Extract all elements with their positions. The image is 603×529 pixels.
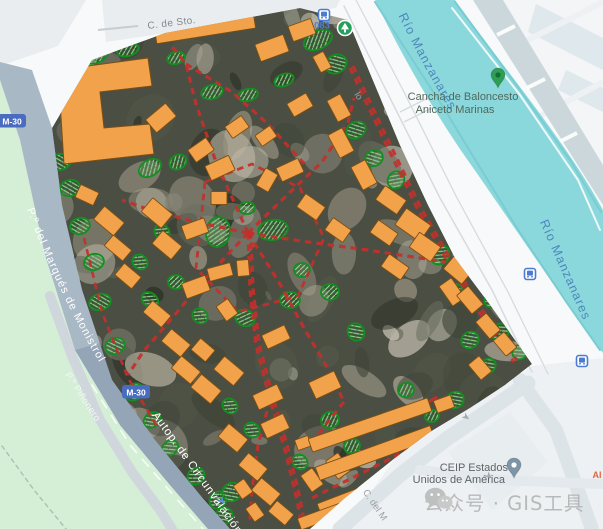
building xyxy=(211,192,227,205)
road-shield-m30: M-30 xyxy=(122,385,150,399)
transit-stop-number: 083 xyxy=(314,21,330,32)
vegetation-polygon xyxy=(239,202,255,214)
map-viewport[interactable]: C. de Sto.Río ManzanaresRío ManzanaresCa… xyxy=(0,0,603,529)
map-label: Al xyxy=(593,470,602,480)
park-tree-icon[interactable] xyxy=(338,21,353,36)
transit-stop-icon[interactable] xyxy=(525,269,536,280)
map-label[interactable]: Cancha de Baloncesto xyxy=(408,91,519,103)
building xyxy=(236,260,249,277)
road-shield-m30: M-30 xyxy=(0,114,26,128)
map-label[interactable]: CEIP Estados xyxy=(440,462,509,474)
map-canvas[interactable]: C. de Sto.Río ManzanaresRío ManzanaresCa… xyxy=(0,0,603,529)
map-label[interactable]: Aniceto Marinas xyxy=(416,104,495,116)
svg-text:M-30: M-30 xyxy=(2,116,22,126)
vegetation-polygon xyxy=(168,275,184,289)
svg-text:M-30: M-30 xyxy=(126,387,146,397)
map-label[interactable]: Unidos de América xyxy=(413,474,506,486)
vegetation-polygon xyxy=(321,284,339,300)
transit-stop-icon[interactable] xyxy=(577,356,588,367)
